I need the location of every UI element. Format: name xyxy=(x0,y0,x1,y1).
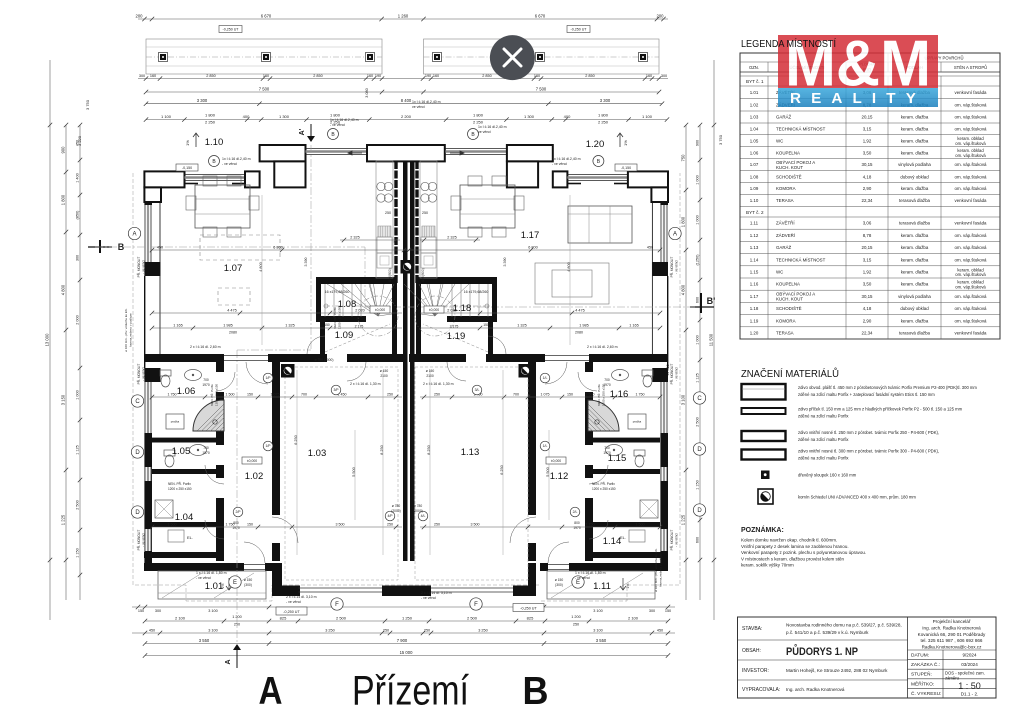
svg-text:PŘ. MONOLIT: PŘ. MONOLIT xyxy=(136,530,141,551)
svg-text:2080: 2080 xyxy=(229,331,237,335)
svg-text:ø 150: ø 150 xyxy=(244,578,253,582)
svg-text:- ve věnci: - ve věnci xyxy=(575,576,590,580)
svg-text:3 250: 3 250 xyxy=(478,629,488,633)
svg-text:900: 900 xyxy=(61,146,66,154)
svg-text:450: 450 xyxy=(647,246,653,250)
svg-text:300: 300 xyxy=(661,74,667,78)
svg-text:zdivo vnitřní nosné tl. 250 mm: zdivo vnitřní nosné tl. 250 mm z pórobet… xyxy=(798,430,939,435)
svg-text:3,15: 3,15 xyxy=(863,257,872,262)
svg-text:OZN.: OZN. xyxy=(749,65,759,70)
svg-text:KOMORA: KOMORA xyxy=(776,318,796,323)
svg-text:±0,000: ±0,000 xyxy=(375,308,385,312)
svg-text:zdivo vnitřní nosné tl. 300 mm: zdivo vnitřní nosné tl. 300 mm z pórobet… xyxy=(798,449,939,454)
svg-text:3 500: 3 500 xyxy=(336,523,345,527)
svg-text:200: 200 xyxy=(136,14,144,19)
svg-text:3 100: 3 100 xyxy=(681,394,686,405)
svg-text:300: 300 xyxy=(649,609,655,613)
svg-text:1 800: 1 800 xyxy=(598,113,609,118)
svg-text:6 800: 6 800 xyxy=(528,246,538,250)
svg-text:15 000: 15 000 xyxy=(400,650,413,655)
svg-text:A: A xyxy=(225,659,232,664)
svg-text:Radka.Knotnerova@c-box.cz: Radka.Knotnerova@c-box.cz xyxy=(922,645,983,650)
svg-text:keram. dlažba: keram. dlažba xyxy=(901,150,929,155)
svg-text:om. váp.štuková: om. váp.štuková xyxy=(955,186,988,191)
svg-text:1x I č.16 dl.2,40 m: 1x I č.16 dl.2,40 m xyxy=(552,157,581,161)
svg-text:Ing. arch. Radka Knotnerová: Ing. arch. Radka Knotnerová xyxy=(922,625,981,630)
svg-text:4,18: 4,18 xyxy=(863,306,872,311)
svg-text:7 900: 7 900 xyxy=(397,638,408,643)
svg-text:om. váp.štuková: om. váp.štuková xyxy=(955,126,988,131)
svg-text:venkovní fasáda: venkovní fasáda xyxy=(955,90,988,95)
svg-text:zděné na zdící maltu Porfix +: zděné na zdící maltu Porfix + zateplovac… xyxy=(798,392,935,397)
svg-text:-0,150: -0,150 xyxy=(621,166,631,170)
svg-text:Novostavba rodinného domu na p: Novostavba rodinného domu na p.č. 539/27… xyxy=(786,623,902,628)
svg-text:7 500: 7 500 xyxy=(259,87,270,92)
svg-text:OBSAH:: OBSAH: xyxy=(742,648,761,654)
svg-text:1 260: 1 260 xyxy=(398,14,409,19)
svg-text:1 800: 1 800 xyxy=(473,113,484,118)
svg-text:TERASA: TERASA xyxy=(776,198,794,203)
svg-text:1 125: 1 125 xyxy=(76,445,80,455)
svg-text:1.01: 1.01 xyxy=(750,90,759,95)
svg-text:kamna,vedeno v podlaze: kamna,vedeno v podlaze xyxy=(659,553,663,587)
svg-text:om. váp.štuková: om. váp.štuková xyxy=(955,162,988,167)
svg-text:Kolem domku navržen okap. chod: Kolem domku navržen okap. chodník tl. 60… xyxy=(741,538,837,543)
svg-text:KOUPELNA: KOUPELNA xyxy=(776,150,800,155)
svg-text:1200 x 250 x150: 1200 x 250 x150 xyxy=(168,487,192,491)
svg-text:om. váp.štuková: om. váp.štuková xyxy=(955,245,988,250)
svg-text:om. váp.štuková: om. váp.štuková xyxy=(955,284,986,289)
svg-text:1.11: 1.11 xyxy=(750,221,759,226)
svg-text:3 100: 3 100 xyxy=(593,609,603,613)
svg-text:30,15: 30,15 xyxy=(862,162,874,167)
svg-text:tel. 325 611 987 , 606 692 866: tel. 325 611 987 , 606 692 866 xyxy=(921,638,983,643)
svg-text:1 100: 1 100 xyxy=(161,114,172,119)
svg-text:1 125: 1 125 xyxy=(696,373,700,383)
svg-text:1.10: 1.10 xyxy=(205,137,224,148)
svg-text:1970: 1970 xyxy=(603,451,611,455)
svg-text:450: 450 xyxy=(657,629,663,633)
svg-text:700: 700 xyxy=(604,378,610,382)
svg-text:2 250: 2 250 xyxy=(473,120,484,125)
svg-text:1.09: 1.09 xyxy=(750,186,759,191)
svg-text:1 000: 1 000 xyxy=(696,175,700,185)
svg-text:190: 190 xyxy=(425,74,431,78)
svg-text:1 000: 1 000 xyxy=(76,390,80,400)
svg-text:NEN. PŘ. Porfix: NEN. PŘ. Porfix xyxy=(592,481,615,486)
svg-text:- ve věnci: - ve věnci xyxy=(675,367,679,381)
svg-text:om. váp.štuková: om. váp.štuková xyxy=(955,141,986,146)
svg-text:3,06: 3,06 xyxy=(863,221,872,226)
svg-text:A: A xyxy=(259,670,283,713)
svg-text:1.13: 1.13 xyxy=(750,245,759,250)
svg-text:B': B' xyxy=(707,296,716,306)
svg-text:1.07: 1.07 xyxy=(750,162,759,167)
svg-text:250: 250 xyxy=(573,623,579,627)
svg-text:keram. dlažba: keram. dlažba xyxy=(901,318,929,323)
svg-text:1 165: 1 165 xyxy=(173,324,183,328)
svg-text:ZAKÁZKA Č.:: ZAKÁZKA Č.: xyxy=(911,661,940,668)
svg-text:1.17: 1.17 xyxy=(750,294,759,299)
svg-text:1200 x 250 x150: 1200 x 250 x150 xyxy=(338,307,342,330)
svg-text:400: 400 xyxy=(564,114,571,119)
svg-text:150: 150 xyxy=(247,393,253,397)
svg-text:F: F xyxy=(335,602,339,608)
svg-text:160: 160 xyxy=(534,74,540,78)
svg-text:(850): (850) xyxy=(76,210,80,220)
svg-text:2 x I č.14 dl. 3,10 m: 2 x I č.14 dl. 3,10 m xyxy=(286,595,317,599)
svg-text:160: 160 xyxy=(150,74,156,78)
svg-text:2,90: 2,90 xyxy=(863,318,872,323)
svg-text:150: 150 xyxy=(567,393,573,397)
svg-text:8 250: 8 250 xyxy=(380,445,384,455)
svg-text:KUCH. KOUT: KUCH. KOUT xyxy=(776,165,803,170)
svg-text:150: 150 xyxy=(138,609,144,613)
svg-text:2 100: 2 100 xyxy=(175,616,186,621)
svg-text:1.03: 1.03 xyxy=(308,448,327,459)
svg-text:3 220: 3 220 xyxy=(77,135,82,146)
svg-text:1.14: 1.14 xyxy=(750,257,759,262)
svg-text:keram. dlažba: keram. dlažba xyxy=(901,245,929,250)
svg-text:6 250: 6 250 xyxy=(294,435,298,445)
svg-text:ZÁVĚTŘÍ: ZÁVĚTŘÍ xyxy=(776,221,795,226)
svg-text:1 000: 1 000 xyxy=(696,335,700,345)
svg-text:1 200: 1 200 xyxy=(571,615,581,619)
svg-text:1%: 1% xyxy=(185,140,190,146)
svg-text:E: E xyxy=(576,580,580,586)
svg-text:1.09: 1.09 xyxy=(335,330,354,341)
svg-text:1x I č.16 dl.2,40 m: 1x I č.16 dl.2,40 m xyxy=(478,125,507,129)
svg-text:- ve věnci: - ve věnci xyxy=(142,367,146,381)
svg-text:1 150: 1 150 xyxy=(76,548,80,558)
svg-text:1 325: 1 325 xyxy=(517,324,527,328)
svg-text:POZNÁMKA:: POZNÁMKA: xyxy=(741,525,784,534)
svg-text:4 800: 4 800 xyxy=(61,284,66,295)
svg-text:1%: 1% xyxy=(626,584,630,589)
svg-text:A: A xyxy=(673,232,677,238)
svg-text:250: 250 xyxy=(387,523,393,527)
svg-text:2,90: 2,90 xyxy=(863,186,872,191)
svg-text:600(900): 600(900) xyxy=(421,268,425,282)
svg-text:1 500: 1 500 xyxy=(586,393,595,397)
svg-text:250: 250 xyxy=(424,629,430,633)
svg-text:160: 160 xyxy=(433,74,439,78)
svg-text:3 550: 3 550 xyxy=(199,638,210,643)
svg-text:om. váp.štuková: om. váp.štuková xyxy=(955,174,988,179)
svg-text:3 390: 3 390 xyxy=(503,258,507,267)
svg-text:1 500: 1 500 xyxy=(168,523,177,527)
svg-text:±0,000: ±0,000 xyxy=(247,459,257,463)
svg-text:1 x I č.16 dl. 1,80 m: 1 x I č.16 dl. 1,80 m xyxy=(575,571,606,575)
svg-text:vinylová podlaha: vinylová podlaha xyxy=(898,162,931,167)
svg-text:1970: 1970 xyxy=(202,383,210,387)
svg-text:700: 700 xyxy=(604,446,610,450)
svg-text:om. váp.štuková: om. váp.štuková xyxy=(955,294,988,299)
svg-text:-0,250 UT: -0,250 UT xyxy=(283,610,300,614)
svg-text:1.05: 1.05 xyxy=(750,138,759,143)
svg-text:4 475: 4 475 xyxy=(575,309,585,313)
svg-text:250: 250 xyxy=(387,393,393,397)
svg-text:STAVBA:: STAVBA: xyxy=(742,626,762,632)
svg-text:zděné na zdící maltu Porfix: zděné na zdící maltu Porfix xyxy=(798,414,849,419)
svg-text:250: 250 xyxy=(385,211,391,215)
svg-text:450: 450 xyxy=(157,246,163,250)
svg-text:20,15: 20,15 xyxy=(862,245,874,250)
svg-text:1/P: 1/P xyxy=(265,444,271,448)
svg-text:F: F xyxy=(474,602,478,608)
svg-text:ve věnci: ve věnci xyxy=(478,130,491,134)
svg-text:Kovanická 66, 290 01 Poděbrady: Kovanická 66, 290 01 Poděbrady xyxy=(918,632,986,637)
svg-text:- ve věnci: - ve věnci xyxy=(330,123,345,127)
svg-text:ø 150: ø 150 xyxy=(380,369,389,373)
svg-text:1200 x 250 x150: 1200 x 250 x150 xyxy=(215,384,219,407)
svg-text:1x I č.16 dl.2,40 m: 1x I č.16 dl.2,40 m xyxy=(412,100,441,104)
svg-text:NEN. PŘ. Porfix: NEN. PŘ. Porfix xyxy=(209,384,214,406)
svg-text:3 150: 3 150 xyxy=(61,394,66,405)
svg-text:2 x I č.16 dl. 1,30 m: 2 x I č.16 dl. 1,30 m xyxy=(350,382,381,386)
svg-text:KOUPELNA: KOUPELNA xyxy=(776,282,800,287)
svg-text:6 250: 6 250 xyxy=(500,465,504,475)
svg-text:750: 750 xyxy=(681,154,686,162)
svg-text:A': A' xyxy=(299,128,306,135)
svg-text:2 000: 2 000 xyxy=(76,315,80,325)
svg-text:Vnitřní parapety z desek lamin: Vnitřní parapety z desek lamina se zaobl… xyxy=(741,544,849,549)
svg-text:22,34: 22,34 xyxy=(862,198,874,203)
svg-text:pračka: pračka xyxy=(633,420,642,424)
svg-text:GARÁŽ: GARÁŽ xyxy=(776,115,791,120)
svg-text:600: 600 xyxy=(696,537,700,543)
svg-text:3,15: 3,15 xyxy=(863,126,872,131)
svg-text:1 800: 1 800 xyxy=(681,216,686,227)
svg-text:komín Schiedel UNI ADVANCED 40: komín Schiedel UNI ADVANCED 400 x 400 mm… xyxy=(798,495,916,500)
svg-text:- ve věnci: - ve věnci xyxy=(222,162,237,166)
svg-text:1.11: 1.11 xyxy=(593,581,611,592)
svg-text:3 750: 3 750 xyxy=(718,134,723,145)
svg-text:2 850: 2 850 xyxy=(482,74,492,78)
svg-text:STUPEŇ:: STUPEŇ: xyxy=(911,671,932,678)
svg-text:1x I č.16 dl.2,40 m: 1x I č.16 dl.2,40 m xyxy=(330,118,359,122)
svg-text:1 250: 1 250 xyxy=(402,616,413,621)
svg-text:±0,000: ±0,000 xyxy=(551,459,561,463)
svg-text:13 000: 13 000 xyxy=(45,333,50,346)
svg-text:1 325: 1 325 xyxy=(285,324,295,328)
svg-text:ZÁDVEŘÍ: ZÁDVEŘÍ xyxy=(776,233,796,238)
svg-text:ve věnci: ve věnci xyxy=(412,105,425,109)
svg-text:p.č. 541/10 a p.č. 539/29 v k.: p.č. 541/10 a p.č. 539/29 v k.ú. Nymburk xyxy=(786,630,869,635)
svg-text:D1.1 - 2.: D1.1 - 2. xyxy=(961,691,979,696)
svg-text:2100: 2100 xyxy=(380,374,388,378)
svg-text:2 x I č.16 dl. 2,60 m: 2 x I č.16 dl. 2,60 m xyxy=(190,345,221,349)
svg-text:1/L: 1/L xyxy=(543,376,548,380)
svg-text:1.13: 1.13 xyxy=(461,447,480,458)
svg-text:VYPRACOVALA:: VYPRACOVALA: xyxy=(742,687,780,693)
svg-text:1.16: 1.16 xyxy=(610,389,629,400)
svg-text:vinylová podlaha: vinylová podlaha xyxy=(898,294,931,299)
svg-text:150: 150 xyxy=(665,609,671,613)
svg-text:700: 700 xyxy=(301,393,307,397)
svg-text:ø 150: ø 150 xyxy=(555,578,564,582)
svg-text:250: 250 xyxy=(434,523,440,527)
svg-text:300: 300 xyxy=(139,74,145,78)
svg-text:30,15: 30,15 xyxy=(862,294,874,299)
svg-text:2 325: 2 325 xyxy=(447,236,457,240)
svg-text:-0,250 UT: -0,250 UT xyxy=(223,28,240,32)
svg-text:ø 150: ø 150 xyxy=(426,369,435,373)
svg-text:1 100: 1 100 xyxy=(642,114,653,119)
svg-text:2 500: 2 500 xyxy=(696,417,700,427)
svg-text:1%: 1% xyxy=(221,584,225,589)
svg-text:A: A xyxy=(132,232,136,238)
svg-text:1 : 50: 1 : 50 xyxy=(958,681,981,691)
svg-text:venkovní fasáda: venkovní fasáda xyxy=(955,221,988,226)
svg-text:2 500: 2 500 xyxy=(467,616,478,621)
svg-text:1.14: 1.14 xyxy=(603,536,622,547)
svg-text:KOMORA: KOMORA xyxy=(776,186,796,191)
svg-text:1.06: 1.06 xyxy=(177,386,196,397)
svg-text:1 000: 1 000 xyxy=(696,215,700,225)
svg-text:3 300: 3 300 xyxy=(600,98,611,103)
svg-text:ZNAČENÍ MATERIÁLŮ: ZNAČENÍ MATERIÁLŮ xyxy=(741,367,839,380)
svg-text:1970: 1970 xyxy=(202,451,210,455)
svg-text:2/P: 2/P xyxy=(235,510,241,514)
svg-text:keram. dlažba: keram. dlažba xyxy=(901,282,929,287)
svg-text:3 390: 3 390 xyxy=(304,258,308,267)
svg-text:terasová dlažba: terasová dlažba xyxy=(899,331,931,336)
svg-text:C: C xyxy=(697,396,702,402)
svg-text:1.12: 1.12 xyxy=(750,233,759,238)
svg-text:BYT č. 2: BYT č. 2 xyxy=(746,210,764,215)
svg-text:2 850: 2 850 xyxy=(313,74,323,78)
svg-text:160: 160 xyxy=(367,74,373,78)
svg-text:250: 250 xyxy=(434,393,440,397)
svg-text:150: 150 xyxy=(483,323,489,327)
svg-text:16 x179,68/260: 16 x179,68/260 xyxy=(464,290,489,294)
svg-text:keram. dlažba: keram. dlažba xyxy=(901,270,929,275)
svg-text:EL.: EL. xyxy=(187,535,193,540)
svg-text:2080: 2080 xyxy=(575,331,583,335)
svg-text:KUCH. KOUT: KUCH. KOUT xyxy=(776,297,803,302)
svg-text:- ve věnci: - ve věnci xyxy=(286,600,301,604)
svg-text:terasová dlažba: terasová dlažba xyxy=(899,198,931,203)
svg-text:600: 600 xyxy=(696,297,700,303)
svg-text:ø 780: ø 780 xyxy=(392,504,401,508)
svg-text:1 750: 1 750 xyxy=(168,393,177,397)
svg-text:záměru: záměru xyxy=(945,675,960,680)
svg-text:C: C xyxy=(135,399,140,405)
svg-text:keram. dlažba: keram. dlažba xyxy=(901,126,929,131)
svg-text:1 500: 1 500 xyxy=(226,393,235,397)
svg-text:-0,250 UT: -0,250 UT xyxy=(520,607,537,611)
svg-text:1.04: 1.04 xyxy=(750,126,759,131)
svg-text:150: 150 xyxy=(247,523,253,527)
svg-text:keram. dlažba: keram. dlažba xyxy=(901,257,929,262)
svg-text:PŮDORYS 1. NP: PŮDORYS 1. NP xyxy=(786,644,858,658)
svg-text:825: 825 xyxy=(527,616,534,621)
svg-text:B: B xyxy=(523,670,549,713)
svg-text:160: 160 xyxy=(646,74,652,78)
svg-text:terasová dlažba: terasová dlažba xyxy=(899,221,931,226)
svg-text:Ing. arch. Radka Knotnerová: Ing. arch. Radka Knotnerová xyxy=(786,687,845,692)
svg-text:5 500: 5 500 xyxy=(352,467,356,477)
svg-text:8 250: 8 250 xyxy=(427,445,431,455)
svg-text:4 475: 4 475 xyxy=(227,309,237,313)
svg-text:8,78: 8,78 xyxy=(863,233,872,238)
svg-text:825: 825 xyxy=(280,616,287,621)
svg-text:800: 800 xyxy=(574,521,580,525)
svg-text:250: 250 xyxy=(422,211,428,215)
svg-text:6 670: 6 670 xyxy=(535,14,546,19)
svg-text:keram. dlažba: keram. dlažba xyxy=(901,186,929,191)
svg-text:NEN. PŘ. Porfix: NEN. PŘ. Porfix xyxy=(596,384,601,406)
svg-text:4,18: 4,18 xyxy=(863,174,872,179)
svg-text:WC: WC xyxy=(776,270,783,275)
svg-text:ø 780 (2000): ø 780 (2000) xyxy=(315,358,334,362)
svg-text:D: D xyxy=(135,450,140,456)
svg-text:1.02: 1.02 xyxy=(245,471,264,482)
svg-text:11 500: 11 500 xyxy=(709,333,714,346)
svg-text:1 500: 1 500 xyxy=(636,523,645,527)
svg-text:D: D xyxy=(135,510,140,516)
svg-text:(300): (300) xyxy=(244,583,252,587)
svg-text:om. váp.štuková: om. váp.štuková xyxy=(955,153,986,158)
svg-text:700: 700 xyxy=(203,378,209,382)
svg-text:dubový obklad: dubový obklad xyxy=(900,306,929,311)
svg-text:D: D xyxy=(697,447,702,453)
svg-text:E: E xyxy=(233,580,237,586)
svg-text:D: D xyxy=(697,508,702,514)
svg-text:4 800: 4 800 xyxy=(567,262,571,272)
svg-text:22,34: 22,34 xyxy=(862,331,874,336)
svg-text:1.20: 1.20 xyxy=(586,139,605,150)
svg-text:3 080: 3 080 xyxy=(365,88,369,98)
svg-text:ø 100 mm - přív. vzduchu ke kr: ø 100 mm - přív. vzduchu ke krb. xyxy=(654,548,658,592)
svg-text:1.06: 1.06 xyxy=(750,150,759,155)
svg-text:2 x I č.16 dl. 2,60 m: 2 x I č.16 dl. 2,60 m xyxy=(587,345,618,349)
svg-text:1.04: 1.04 xyxy=(175,512,194,523)
svg-text:INVESTOR:: INVESTOR: xyxy=(742,668,769,674)
svg-text:2 x I č.14 dl. 3,10 m: 2 x I č.14 dl. 3,10 m xyxy=(421,591,452,595)
svg-text:NEN. PŘ. Porfix: NEN. PŘ. Porfix xyxy=(332,307,337,329)
svg-text:2100: 2100 xyxy=(426,374,434,378)
svg-text:3 300: 3 300 xyxy=(197,98,208,103)
svg-text:1 x I č.16 dl. 1,80 m: 1 x I č.16 dl. 1,80 m xyxy=(196,571,227,575)
svg-text:6 800: 6 800 xyxy=(273,246,283,250)
svg-text:16 x179,68/260: 16 x179,68/260 xyxy=(325,290,350,294)
svg-text:1/P: 1/P xyxy=(265,376,271,380)
svg-text:3 100: 3 100 xyxy=(593,629,603,633)
svg-text:- ve věnci: - ve věnci xyxy=(675,533,679,547)
svg-text:1.15: 1.15 xyxy=(750,270,759,275)
svg-text:3 100: 3 100 xyxy=(208,629,218,633)
svg-text:(2000): (2000) xyxy=(391,509,401,513)
svg-text:1.02: 1.02 xyxy=(750,102,759,107)
svg-text:1.19: 1.19 xyxy=(750,318,759,323)
svg-text:BYT č. 1: BYT č. 1 xyxy=(746,79,764,84)
svg-text:1.08: 1.08 xyxy=(750,174,759,179)
svg-text:03/2024: 03/2024 xyxy=(961,662,978,667)
svg-text:400: 400 xyxy=(243,114,250,119)
svg-text:900: 900 xyxy=(696,140,700,146)
svg-text:- ve věnci: - ve věnci xyxy=(142,533,146,547)
svg-text:Projekční kancelář: Projekční kancelář xyxy=(933,619,971,624)
svg-text:ø 100 mm - přív. vzduchu ke kr: ø 100 mm - přív. vzduchu ke krb. xyxy=(124,308,128,352)
svg-text:kamna,vedeno v podlaze: kamna,vedeno v podlaze xyxy=(129,313,133,347)
svg-text:20,15: 20,15 xyxy=(862,115,874,120)
svg-text:200: 200 xyxy=(657,14,665,19)
svg-text:1.19: 1.19 xyxy=(447,331,466,342)
svg-text:dubový obklad: dubový obklad xyxy=(900,174,929,179)
svg-text:dřevěný sloupek 160 x 160 mm: dřevěný sloupek 160 x 160 mm xyxy=(798,473,857,478)
